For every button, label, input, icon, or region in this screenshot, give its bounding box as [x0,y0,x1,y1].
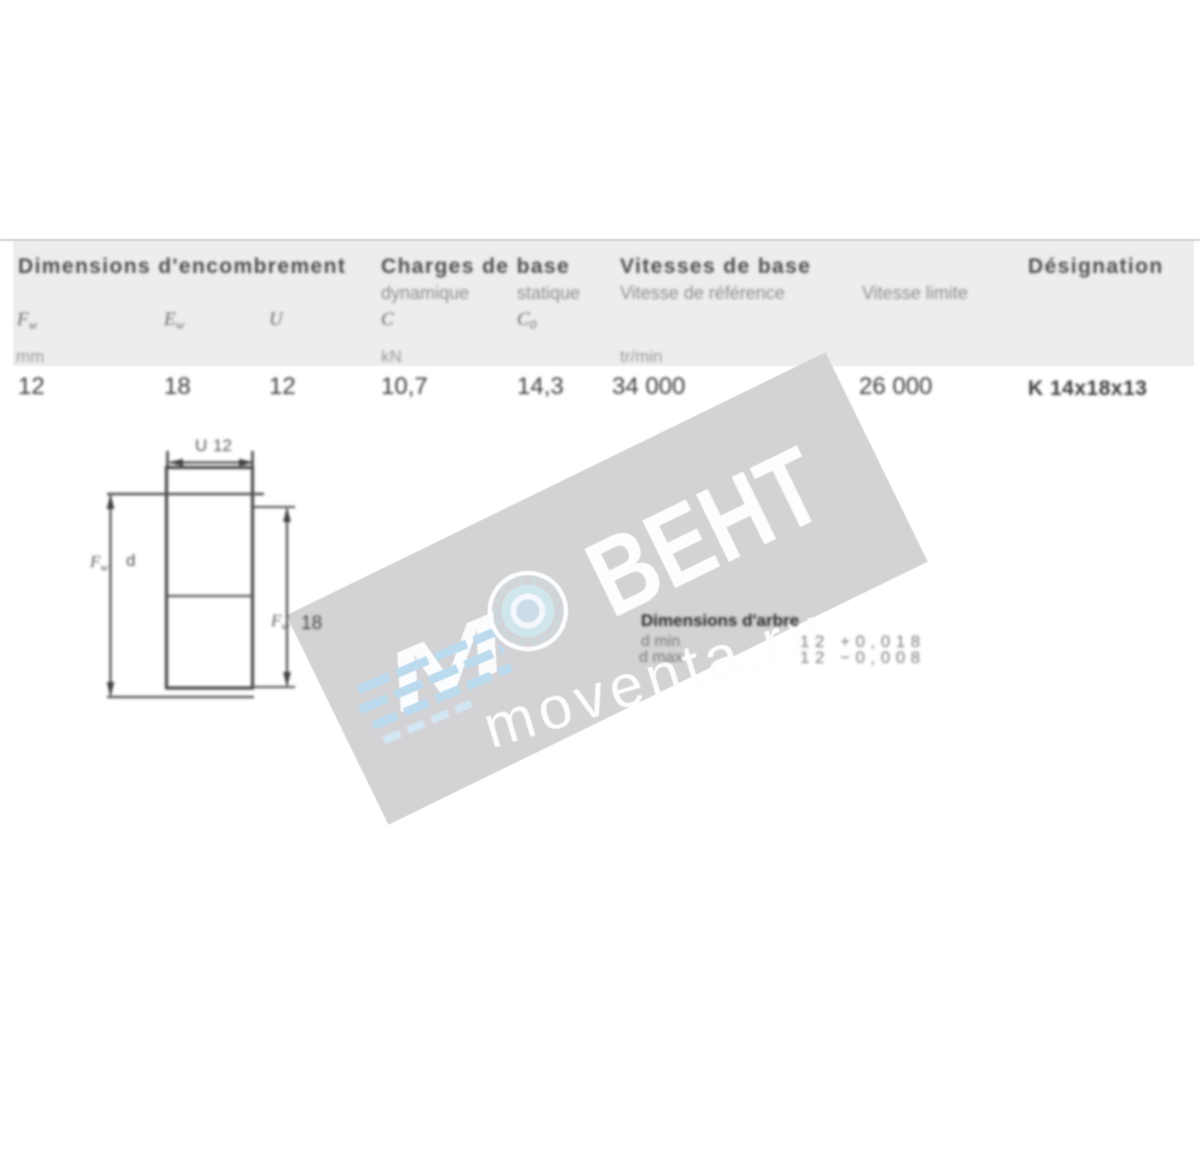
svg-text:Fw: Fw [89,552,108,574]
svg-text:18: 18 [301,613,322,634]
svg-text:d: d [126,551,135,570]
svg-text:U: U [195,436,207,455]
svg-text:12: 12 [213,436,232,455]
